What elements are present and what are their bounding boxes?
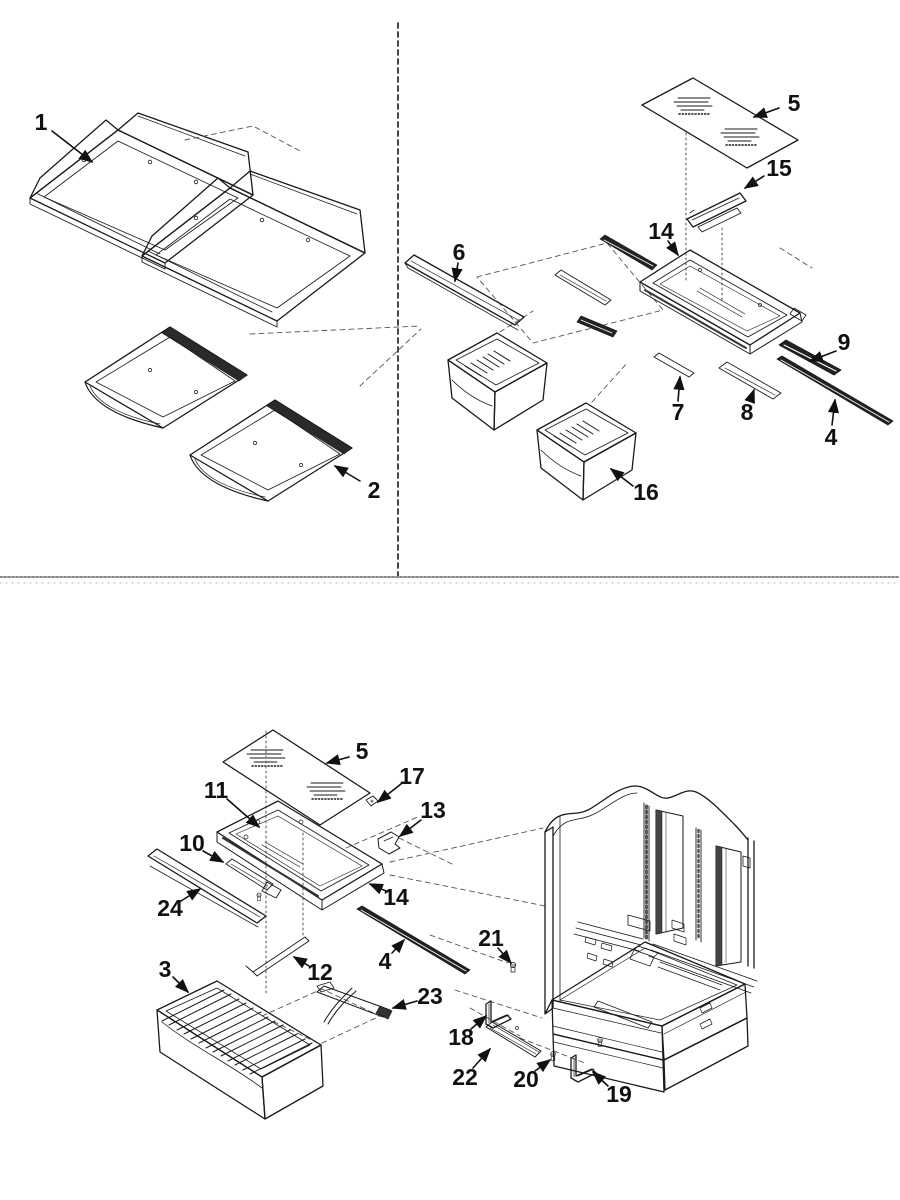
- callout-6: 6: [453, 239, 466, 265]
- callout-3: 3: [159, 956, 172, 982]
- callout-1: 1: [35, 109, 48, 135]
- callout-13: 13: [420, 797, 446, 823]
- part-23-damper-assembly: [317, 982, 392, 1024]
- part-12-link-rod: [246, 937, 309, 976]
- callout-23: 23: [417, 983, 443, 1009]
- exploded-parts-diagram: 1 2 5 15 14 6 9 7 8 4 16 5 17 11 13 10 2…: [0, 0, 900, 1200]
- callout-14-top: 14: [648, 218, 674, 244]
- callout-14-bottom: 14: [383, 884, 409, 910]
- callout-12: 12: [307, 959, 333, 985]
- callout-22: 22: [452, 1064, 478, 1090]
- glass-smudge: [721, 129, 759, 145]
- cabinet-liner: [545, 786, 757, 1092]
- callout-7: 7: [672, 399, 685, 425]
- part-2-glass-shelf-pair: [85, 326, 421, 501]
- callout-16: 16: [633, 479, 659, 505]
- projection-lines-top-right: [477, 133, 812, 402]
- part-7-support-rod: [654, 353, 694, 377]
- part-17-clip: [366, 796, 378, 806]
- glass-smudge: [674, 98, 712, 114]
- callout-17: 17: [399, 763, 425, 789]
- callout-11: 11: [204, 777, 229, 803]
- callout-4-top: 4: [825, 424, 838, 450]
- callout-9: 9: [838, 329, 851, 355]
- callout-21: 21: [478, 925, 504, 951]
- callout-5-top: 5: [788, 90, 801, 116]
- part-9-rail-strip: [779, 340, 841, 375]
- part-16-crisper-bins: [448, 333, 636, 500]
- part-8-trim-strip: [719, 362, 781, 399]
- part-5-glass-insert-bottom: [223, 730, 370, 825]
- callout-18: 18: [448, 1024, 474, 1050]
- callout-2: 2: [368, 477, 381, 503]
- rear-trim-rail: [555, 235, 657, 337]
- callout-8: 8: [741, 399, 754, 425]
- part-13-latch-clip: [378, 832, 400, 854]
- part-11-deli-shelf-frame-bottom: [217, 801, 384, 910]
- callout-20: 20: [513, 1066, 539, 1092]
- callout-10: 10: [179, 830, 205, 856]
- parts-diagram-page: 1 2 5 15 14 6 9 7 8 4 16 5 17 11 13 10 2…: [0, 0, 900, 1200]
- glass-smudge: [307, 783, 345, 799]
- part-15-shelf-rail: [687, 193, 746, 232]
- callout-19: 19: [606, 1081, 632, 1107]
- part-3-ribbed-drawer: [157, 981, 323, 1119]
- part-4-long-rail-bottom: [357, 906, 470, 974]
- callout-24: 24: [157, 895, 183, 921]
- part-6-front-trim: [405, 255, 524, 330]
- part-14-deli-shelf-frame-top: [640, 250, 806, 354]
- callout-15: 15: [766, 155, 792, 181]
- part-1-slide-shelf-pair: [30, 113, 365, 327]
- callout-4-bottom: 4: [379, 948, 392, 974]
- part-21-screw: [510, 962, 515, 972]
- callout-5-bottom: 5: [356, 738, 369, 764]
